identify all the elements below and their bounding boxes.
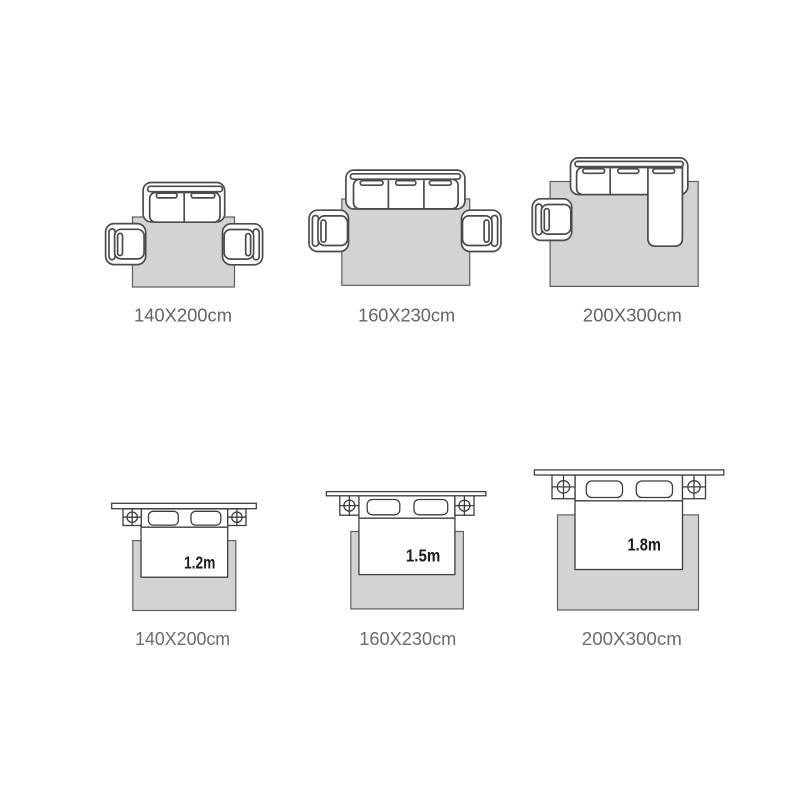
svg-text:1.8m: 1.8m <box>628 535 661 555</box>
svg-text:140X200cm: 140X200cm <box>134 305 232 326</box>
svg-text:1.2m: 1.2m <box>184 553 215 573</box>
svg-text:200X300cm: 200X300cm <box>583 305 682 326</box>
svg-text:200X300cm: 200X300cm <box>582 628 682 649</box>
svg-text:1.5m: 1.5m <box>406 546 440 566</box>
svg-text:140X200cm: 140X200cm <box>135 628 230 649</box>
svg-text:160X230cm: 160X230cm <box>359 628 456 649</box>
svg-text:160X230cm: 160X230cm <box>358 305 455 326</box>
